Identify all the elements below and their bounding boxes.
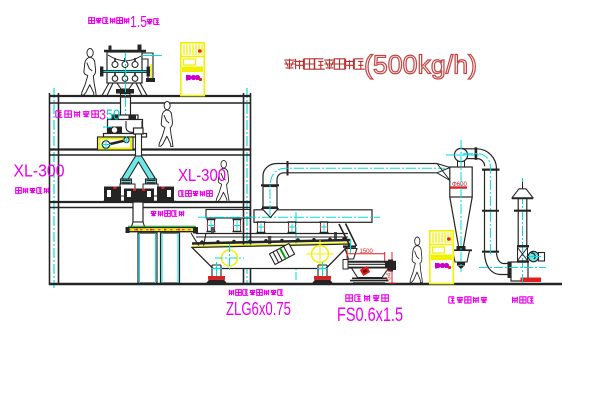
svg-text:1.5: 1.5 [130,14,147,31]
svg-text:(500kg/h): (500kg/h) [364,50,477,80]
svg-text:541: 541 [386,269,393,280]
svg-text:350: 350 [99,107,120,124]
svg-text:Φ600: Φ600 [452,182,467,188]
svg-text:ZLG6x0.75: ZLG6x0.75 [226,299,291,319]
svg-text:FS0.6x1.5: FS0.6x1.5 [337,305,403,326]
svg-text:XL-300: XL-300 [14,161,65,181]
svg-text:XL-300: XL-300 [178,165,226,185]
svg-text:1500: 1500 [360,249,374,255]
